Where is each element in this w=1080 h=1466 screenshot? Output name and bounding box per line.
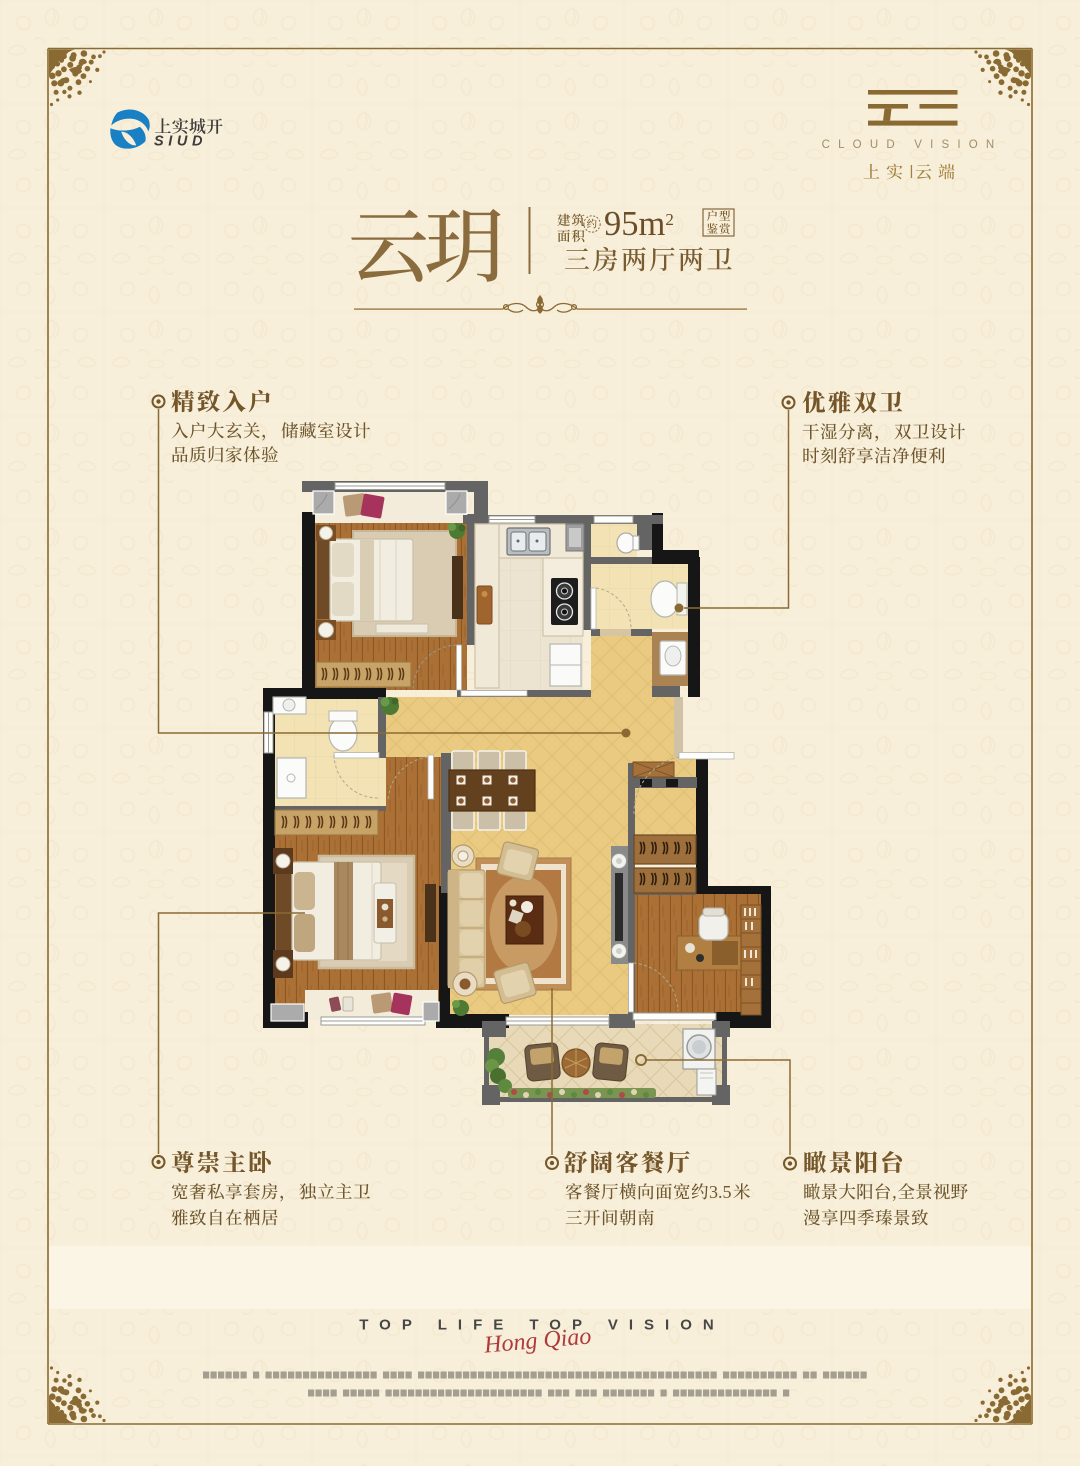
- svg-text:CLOUD VISION: CLOUD VISION: [822, 139, 1003, 151]
- svg-text:95m2: 95m2: [604, 205, 674, 243]
- svg-text:SIUD: SIUD: [154, 134, 207, 150]
- svg-text:3.5: 3.5: [709, 1182, 732, 1202]
